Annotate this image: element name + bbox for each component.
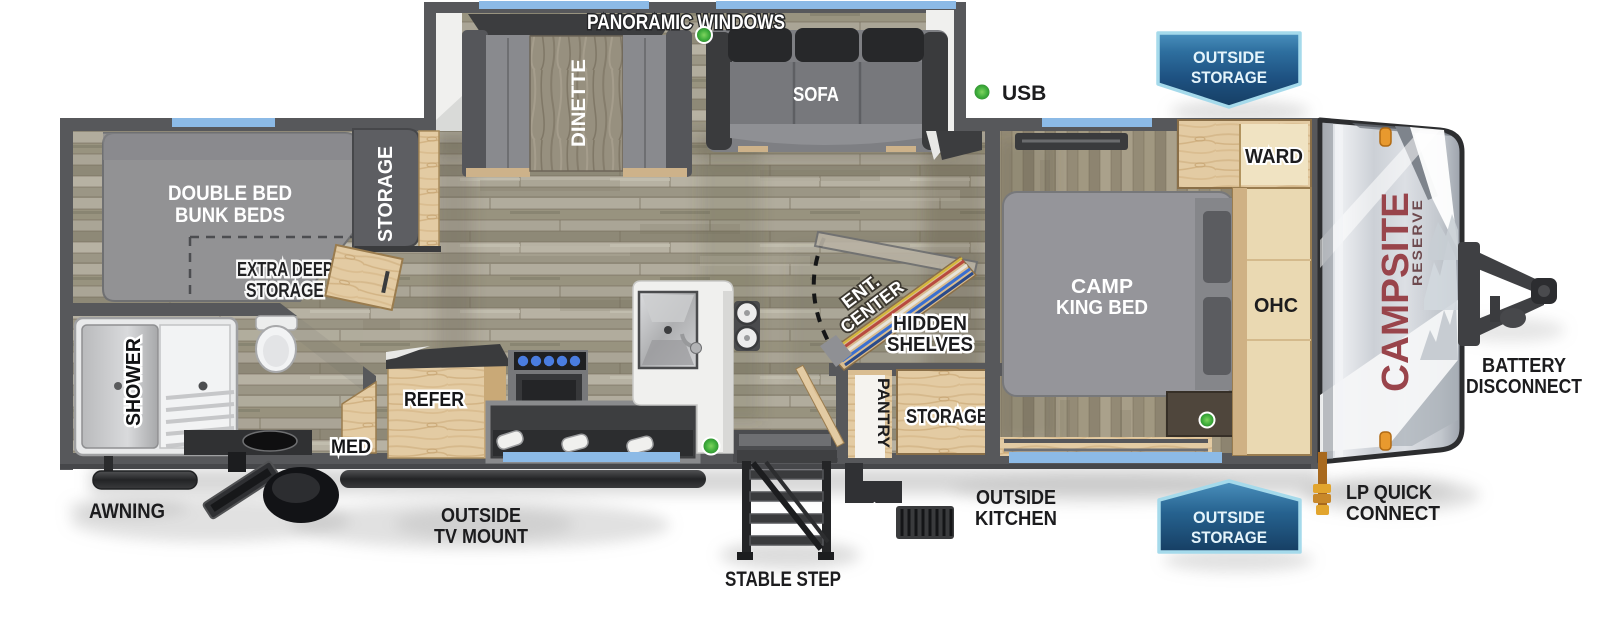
svg-text:DOUBLE BED: DOUBLE BED (168, 182, 292, 205)
svg-text:STORAGE: STORAGE (246, 280, 324, 302)
svg-text:BATTERY: BATTERY (1482, 355, 1567, 377)
svg-text:BUNK BEDS: BUNK BEDS (175, 204, 285, 227)
svg-text:SHOWER: SHOWER (123, 337, 145, 426)
svg-text:TV MOUNT: TV MOUNT (434, 526, 528, 548)
svg-text:AWNING: AWNING (89, 500, 165, 523)
svg-text:KING BED: KING BED (1056, 297, 1148, 319)
svg-text:WARD: WARD (1245, 146, 1303, 168)
svg-text:OUTSIDE: OUTSIDE (441, 505, 521, 527)
svg-text:OUTSIDE: OUTSIDE (1193, 49, 1265, 67)
svg-text:OHC: OHC (1254, 295, 1298, 317)
svg-text:USB: USB (1002, 82, 1046, 105)
svg-text:HIDDEN: HIDDEN (893, 313, 967, 335)
svg-text:MED: MED (331, 437, 371, 458)
svg-text:CONNECT: CONNECT (1346, 503, 1440, 525)
svg-text:OUTSIDE: OUTSIDE (976, 487, 1056, 509)
svg-text:DISCONNECT: DISCONNECT (1466, 376, 1582, 398)
svg-text:OUTSIDE: OUTSIDE (1193, 509, 1265, 527)
svg-text:STABLE STEP: STABLE STEP (725, 568, 841, 591)
svg-text:SHELVES: SHELVES (887, 334, 973, 356)
svg-text:STORAGE: STORAGE (906, 406, 988, 428)
svg-text:KITCHEN: KITCHEN (975, 508, 1057, 530)
svg-text:RESERVE: RESERVE (1409, 198, 1425, 286)
svg-text:LP QUICK: LP QUICK (1346, 482, 1432, 504)
svg-text:STORAGE: STORAGE (1191, 529, 1267, 547)
svg-text:SOFA: SOFA (793, 84, 839, 106)
svg-text:DINETTE: DINETTE (569, 59, 590, 147)
svg-text:CAMP: CAMP (1071, 276, 1133, 298)
svg-text:STORAGE: STORAGE (375, 146, 397, 242)
svg-text:PANTRY: PANTRY (874, 378, 893, 449)
svg-text:REFER: REFER (404, 389, 464, 411)
svg-text:EXTRA DEEP: EXTRA DEEP (237, 259, 333, 281)
svg-text:STORAGE: STORAGE (1191, 69, 1267, 87)
svg-text:PANORAMIC WINDOWS: PANORAMIC WINDOWS (587, 11, 785, 34)
